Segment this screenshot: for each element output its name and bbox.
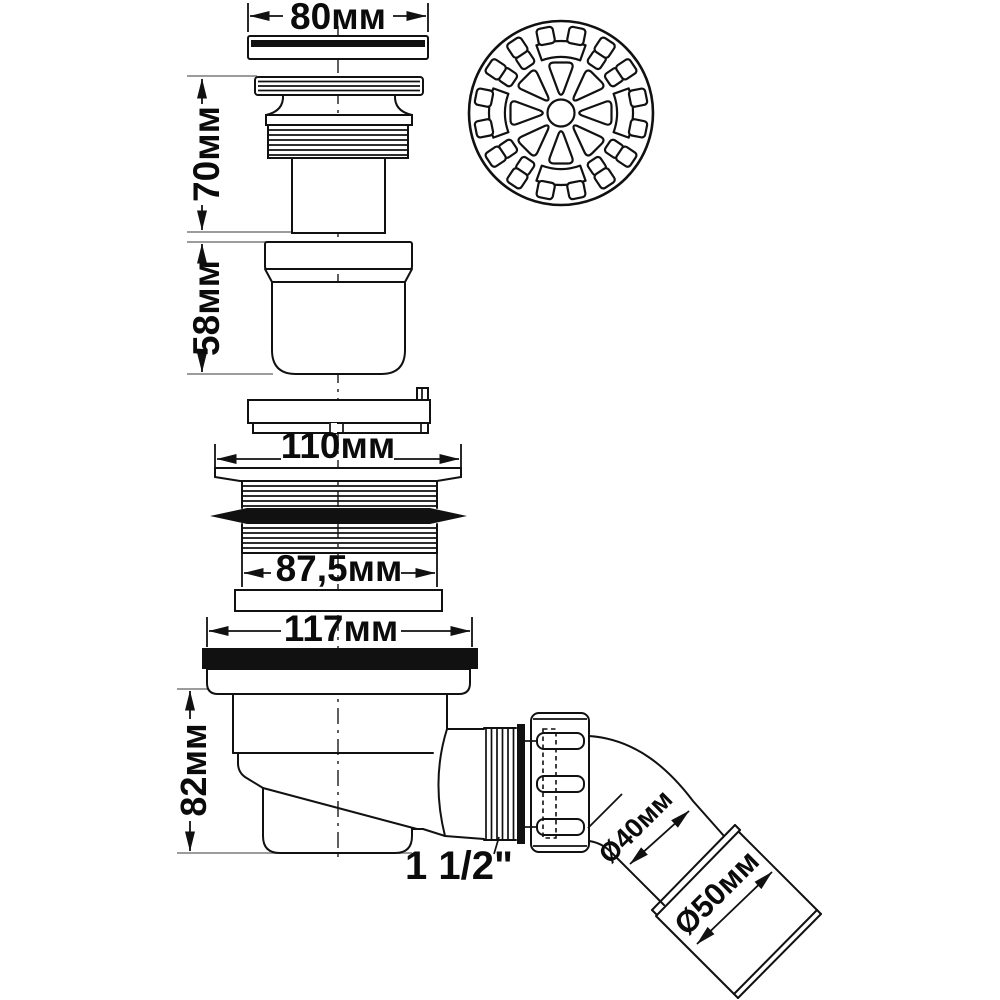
body-slope-line xyxy=(263,788,417,829)
top-plate-black xyxy=(202,648,478,669)
flange-thread-assembly: 110мм 87,5мм xyxy=(210,425,467,611)
assembled-drain-side-view: 117мм 82мм xyxy=(173,608,821,998)
drain-core-side-view: 70мм xyxy=(186,77,423,233)
body-shoulder xyxy=(238,753,263,788)
dim-label-cup-height: 58мм xyxy=(186,260,227,356)
outlet-transition-curve xyxy=(438,729,447,836)
drain-grate-top-view xyxy=(469,21,653,205)
trap-cup-side-view: 58мм xyxy=(186,242,412,374)
dim-label-thread-width: 87,5мм xyxy=(276,548,403,589)
cap-black-band xyxy=(251,40,425,47)
drawing-canvas: 80мм 70мм xyxy=(0,0,1000,1000)
dim-label-body-width: 117мм xyxy=(284,608,398,649)
dim-label-flange-width: 110мм xyxy=(281,425,395,466)
label-outlet-thread-size: 1 1/2" xyxy=(405,844,513,888)
drain-cap-side-view: 80мм xyxy=(248,0,428,59)
bottom-cup xyxy=(263,788,423,853)
flange-plate xyxy=(215,468,461,481)
dim-label-core-height: 70мм xyxy=(186,106,227,202)
union-nut xyxy=(525,713,589,852)
dim-label-cap-width: 80мм xyxy=(290,0,386,37)
core-neck-left xyxy=(266,95,283,115)
shower-drain-technical-drawing: 80мм 70мм xyxy=(0,0,1000,1000)
core-tube xyxy=(292,158,385,233)
dim-label-body-height: 82мм xyxy=(173,723,214,816)
outlet-thread xyxy=(484,728,516,840)
body-rim xyxy=(207,669,470,694)
dim-label-pipe-diameter: Ø40мм xyxy=(593,784,679,870)
core-neck-right xyxy=(395,95,412,115)
rubber-seal xyxy=(210,508,467,524)
outlet-gasket xyxy=(517,724,525,844)
cup-body xyxy=(272,282,405,374)
